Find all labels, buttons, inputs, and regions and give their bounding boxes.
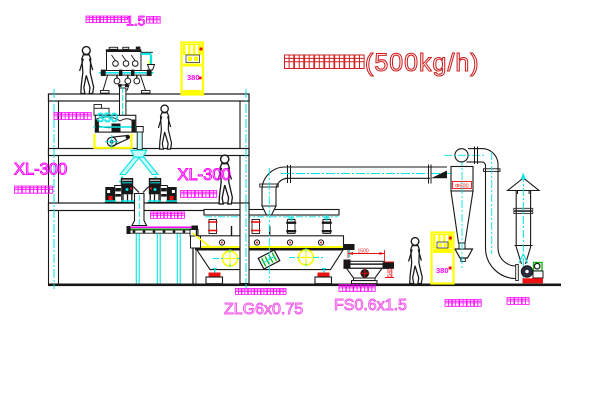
svg-text:548: 548	[387, 268, 393, 277]
svg-text:1.5: 1.5	[126, 13, 146, 29]
svg-text:350: 350	[97, 111, 118, 125]
svg-text:380: 380	[187, 73, 200, 82]
svg-text:(500kg/h): (500kg/h)	[365, 49, 480, 77]
svg-text:FS0.6x1.5: FS0.6x1.5	[334, 297, 407, 314]
svg-text:ZLG6x0.75: ZLG6x0.75	[224, 301, 303, 318]
svg-text:380: 380	[436, 266, 449, 275]
svg-text:XL-300: XL-300	[14, 161, 67, 179]
svg-text:1500: 1500	[358, 249, 369, 255]
svg-text:XL-300: XL-300	[178, 166, 231, 184]
